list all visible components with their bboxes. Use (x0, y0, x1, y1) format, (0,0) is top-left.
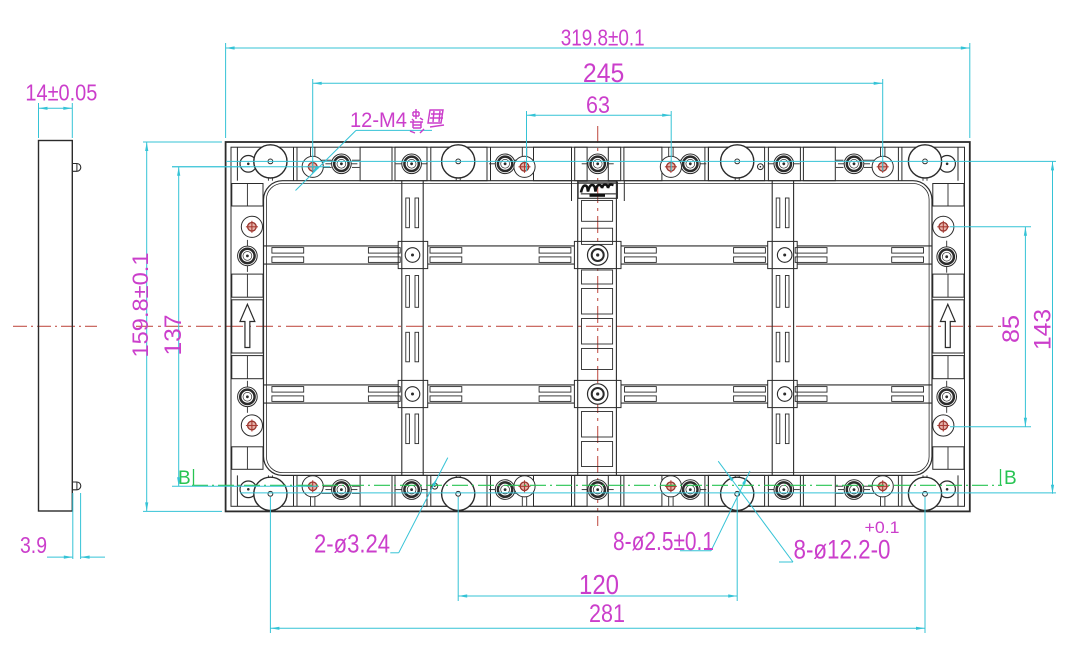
svg-text:14±0.05: 14±0.05 (25, 80, 97, 106)
svg-text:85: 85 (998, 315, 1025, 343)
svg-text:B: B (1004, 468, 1017, 489)
svg-text:63: 63 (586, 92, 610, 119)
svg-text:319.8±0.1: 319.8±0.1 (561, 24, 645, 50)
svg-text:3.9: 3.9 (20, 532, 47, 558)
svg-text:2-ø3.24: 2-ø3.24 (314, 529, 390, 559)
svg-text:8-ø2.5±0.1: 8-ø2.5±0.1 (613, 526, 714, 556)
svg-text:12-M4: 12-M4 (350, 109, 407, 132)
svg-text:120: 120 (579, 569, 619, 600)
svg-text:137: 137 (160, 315, 187, 356)
svg-text:281: 281 (589, 600, 625, 628)
svg-text:159.8±0.1: 159.8±0.1 (128, 253, 153, 358)
svg-text:143: 143 (1030, 309, 1057, 350)
svg-text:245: 245 (583, 58, 624, 88)
svg-text:8-ø12.2-0: 8-ø12.2-0 (794, 535, 891, 565)
